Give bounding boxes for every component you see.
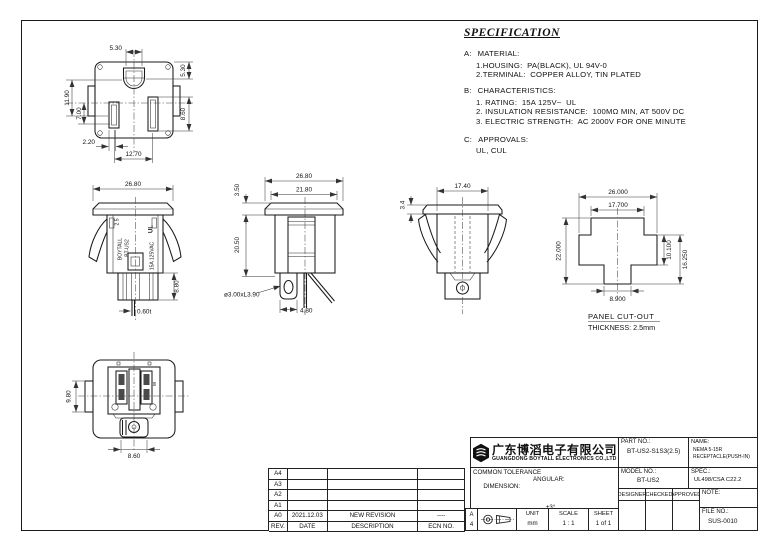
front-right-slot [148,97,158,131]
spec-title: SPECIFICATION [464,27,760,39]
dimension-label: 5.30 [110,45,123,52]
side-view-section: 26.80 21.80 3.50 20.50 ø3.00xL3.90 4.80 [224,173,343,315]
polarity-marking: W [152,381,157,386]
tolerance-headers: DIMENSION: ANGULAR: [471,477,618,505]
spec-section-label: B: [464,86,472,95]
spec-item: 1.HOUSING: PA(BLACK), UL 94V-0 [464,61,760,71]
dimension-label: 8.60 [180,107,187,120]
spec-section-heading: APPROVALS: [478,135,528,144]
dimension-label: 5.30 [180,64,187,77]
spec-item: 2.TERMINAL: COPPER ALLOY, TIN PLATED [464,70,760,80]
part-no-value: BT-US2-S1S3(2.5) [619,448,688,455]
part-no-label: PART NO.: [619,438,688,445]
file-no-value: SUS-0010 [700,518,757,525]
dimension-label: 11.90 [64,90,71,106]
spec-section-heading: MATERIAL: [478,49,520,58]
mount-boss [280,273,297,299]
sheet-label: SHEET [589,509,618,517]
name-value-line2: RECEPTACLE(PUSH-IN) [689,454,757,461]
dimension-label-text: DIMENSION: [483,483,520,490]
dimension-label: 22.000 [556,241,563,261]
revision-row: A0 2021.12.03 NEW REVISION ---- [269,511,465,522]
dimension-label: 16.250 [682,249,689,269]
model-no-label: MODEL NO.: [619,468,688,475]
revision-table: A4 A3 A2 A1 A0 2021.12.03 NEW REVISION [268,468,465,531]
spec-section-characteristics: B: CHARACTERISTICS: 1. RATING: 15A 125V~… [464,86,760,127]
revision-row: A3 [269,480,465,491]
drawing-sheet: 5.30 5.30 8.60 11.90 7.00 2.20 12.70 [0,0,770,544]
dimension-label: 20.50 [234,237,241,253]
front-left-slot [109,102,119,128]
ul-mark-icon: UL [148,225,155,233]
panel-cutout-view: 26.000 17.700 22.000 10.100 16.250 8.900… [556,189,690,332]
note-cell: NOTE: [699,488,758,508]
dimension-label: 26.80 [296,173,312,180]
approved-signature-cell [672,500,700,531]
right-mounting-wing [163,219,181,262]
rear-right-tab [175,381,183,412]
revision-row: A4 [269,469,465,480]
brand-marking: BOYTALL [118,238,124,260]
name-label: NAME: [689,438,757,445]
spec-value: UL498/CSA C22.2 [689,477,757,483]
side-view-clips: 17.40 3.4 [400,183,507,314]
part-no-cell: PART NO.: BT-US2-S1S3(2.5) [618,437,689,468]
specification-block: SPECIFICATION A: MATERIAL: 1.HOUSING: PA… [464,27,760,162]
cutout-outline [579,218,657,284]
dimension-label: 2.20 [83,139,96,146]
company-cell: 广东博滔电子有限公司 GUANGDONG BOYTALL ELECTRONICS… [470,437,619,468]
tolerance-cell: COMMON TOLERANCE DIMENSION: ANGULAR: .00… [470,467,619,509]
spec-section-label: C: [464,135,472,144]
designer-signature-cell [618,500,646,531]
front-left-tab [88,86,95,116]
note-label: NOTE: [700,489,757,496]
file-no-cell: FILE NO.: SUS-0010 [699,507,758,531]
spec-label: SPEC.: [689,468,757,475]
wire-size-marking: 2.5 [115,218,121,225]
unit-value: mm [517,520,548,527]
rear-left-tab [85,381,93,412]
model-no-value: BT-US2 [619,477,688,484]
scale-label: SCALE [549,509,588,517]
dimension-label: 26.000 [608,189,628,196]
dimension-label: 8.60 [128,453,141,460]
company-name-cn: 广东博滔电子有限公司 [492,444,617,456]
company-logo [472,443,490,463]
rating-marking: 15A 125VAC [150,241,156,270]
checked-signature-cell [645,500,673,531]
sheet-value: 1 of 1 [589,520,618,527]
projection-symbol-cell [477,508,517,531]
model-marking: BT-US2 [125,239,131,257]
revision-row: A1 [269,501,465,512]
dimension-label: 4.80 [300,308,313,315]
cutout-title: PANEL CUT-OUT [588,312,654,321]
scale-cell: SCALE 1 : 1 [548,508,589,531]
front-view: 5.30 5.30 8.60 11.90 7.00 2.20 12.70 [64,45,193,163]
revision-row: A2 [269,490,465,501]
dimension-label: 26.80 [125,181,141,188]
boss-hole [284,281,293,294]
hole-callout: ø3.00xL3.90 [224,292,260,299]
dimension-label: 3.4 [400,200,407,209]
spec-section-material: A: MATERIAL: 1.HOUSING: PA(BLACK), UL 94… [464,49,760,80]
dimension-label: 17.40 [455,183,471,190]
paper-size-a: A [466,510,477,520]
spec-section-label: A: [464,49,472,58]
spec-item: 2. INSULATION RESISTANCE: 100MΩ MIN, AT … [464,107,760,117]
name-cell: NAME: NEMA 5-15R RECEPTACLE(PUSH-IN) [688,437,758,468]
center-rib [129,369,140,410]
spec-section-heading: CHARACTERISTICS: [478,86,556,95]
dimension-label: 10.100 [666,240,673,260]
front-right-tab [173,86,180,116]
revision-header-row: REV. DATE DESCRIPTION ECN NO. [269,522,465,533]
dimension-label: 8.900 [610,296,626,303]
company-name-en: GUANGDONG BOYTALL ELECTRONICS CO.,LTD [492,456,617,462]
dimension-label: 17.700 [608,202,628,209]
unit-label: UNIT [517,509,548,517]
scale-value: 1 : 1 [549,520,588,527]
paper-size-4: 4 [466,520,477,530]
angular-label-text: ANGULAR: [533,477,565,484]
dimension-label: 9.80 [66,390,73,403]
third-angle-projection-icon [479,509,516,530]
spec-item: 1. RATING: 15A 125V~ UL [464,98,760,108]
terminal-block [118,273,158,300]
dimension-label: 12.70 [126,151,142,158]
dimension-label: 3.50 [234,183,241,196]
dimension-label: 8.80 [174,280,181,293]
spec-item: UL, CUL [464,146,760,156]
left-mounting-wing [89,219,107,262]
sheet-cell: SHEET 1 of 1 [588,508,619,531]
dimension-label: 7.00 [76,107,83,120]
file-no-label: FILE NO.: [700,508,757,515]
spec-item: 3. ELECTRIC STRENGTH: AC 2000V FOR ONE M… [464,117,760,127]
cutout-thickness: THICKNESS: 2.5mm [588,323,655,332]
spec-cell: SPEC.: UL498/CSA C22.2 [688,467,758,489]
spec-section-approvals: C: APPROVALS: UL, CUL [464,135,760,156]
rear-view: W 9.80 8.60 [66,352,191,460]
model-no-cell: MODEL NO.: BT-US2 [618,467,689,489]
side-view-marked: BOYTALL BT-US2 2.5 UL 15A 125VAC 26.80 8… [89,181,181,320]
unit-cell: UNIT mm [516,508,549,531]
dimension-label: 21.80 [296,187,312,194]
dimension-label: 0.60t [137,309,151,316]
